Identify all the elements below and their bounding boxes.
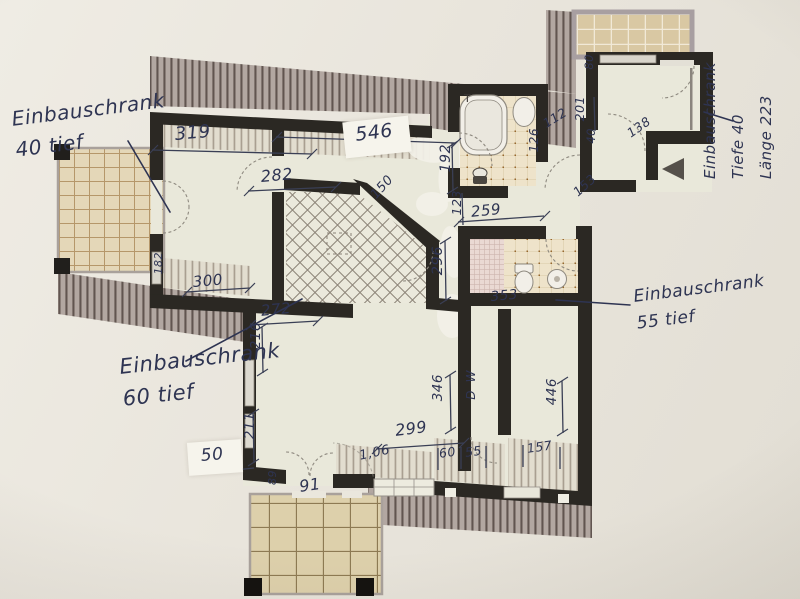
dim-80: 80 [582,54,596,70]
dim-40: 40 [584,128,598,144]
dim-182: 182 [152,252,165,275]
balcony-top-right [574,12,692,57]
dim-299: 299 [394,417,428,440]
dim-89: 89 [266,470,279,485]
wc-shower-tiles [470,239,504,293]
label-dryer: D [464,390,478,400]
dim-91: 91 [298,474,322,496]
dim-296: 296 [430,246,446,275]
note-line: Einbauschrank [697,27,725,179]
dim-272: 272 [260,299,292,320]
dim-446: 446 [544,378,560,405]
dim-60: 60 [438,444,457,461]
dim-192: 192 [438,144,454,172]
toilet [515,271,533,293]
dim-259: 259 [470,200,502,221]
floorplan-photo: Einbauschrank 40 tief Einbauschrank 60 t… [0,0,800,599]
bathtub-inner [465,100,502,150]
dim-346: 346 [430,374,446,401]
wc-basin-drain [554,276,560,282]
dim-353: 353 [490,287,519,305]
dim-50: 50 [200,444,224,466]
label-tub-faucet: T [464,92,471,105]
dim-319: 319 [174,121,212,145]
terrace-bottom [244,491,382,596]
label-washer: W [464,370,478,382]
dim-126: 126 [527,128,541,152]
balcony-left [54,144,164,274]
dim-201: 201 [572,96,587,121]
dim-55: 55 [464,443,483,460]
note-line: Länge 223 [753,27,781,179]
bidet-base [473,176,487,184]
note-einbauschrank-223: Einbauschrank Tiefe 40 Länge 223 [697,27,791,179]
dim-282: 282 [260,164,294,186]
dim-123: 123 [449,190,464,215]
dim-216: 216 [248,322,264,349]
note-line: Tiefe 40 [725,27,753,179]
dim-211: 211 [242,412,258,439]
dim-546: 546 [354,119,394,145]
dim-300: 300 [192,270,224,291]
washbasin [513,98,535,127]
